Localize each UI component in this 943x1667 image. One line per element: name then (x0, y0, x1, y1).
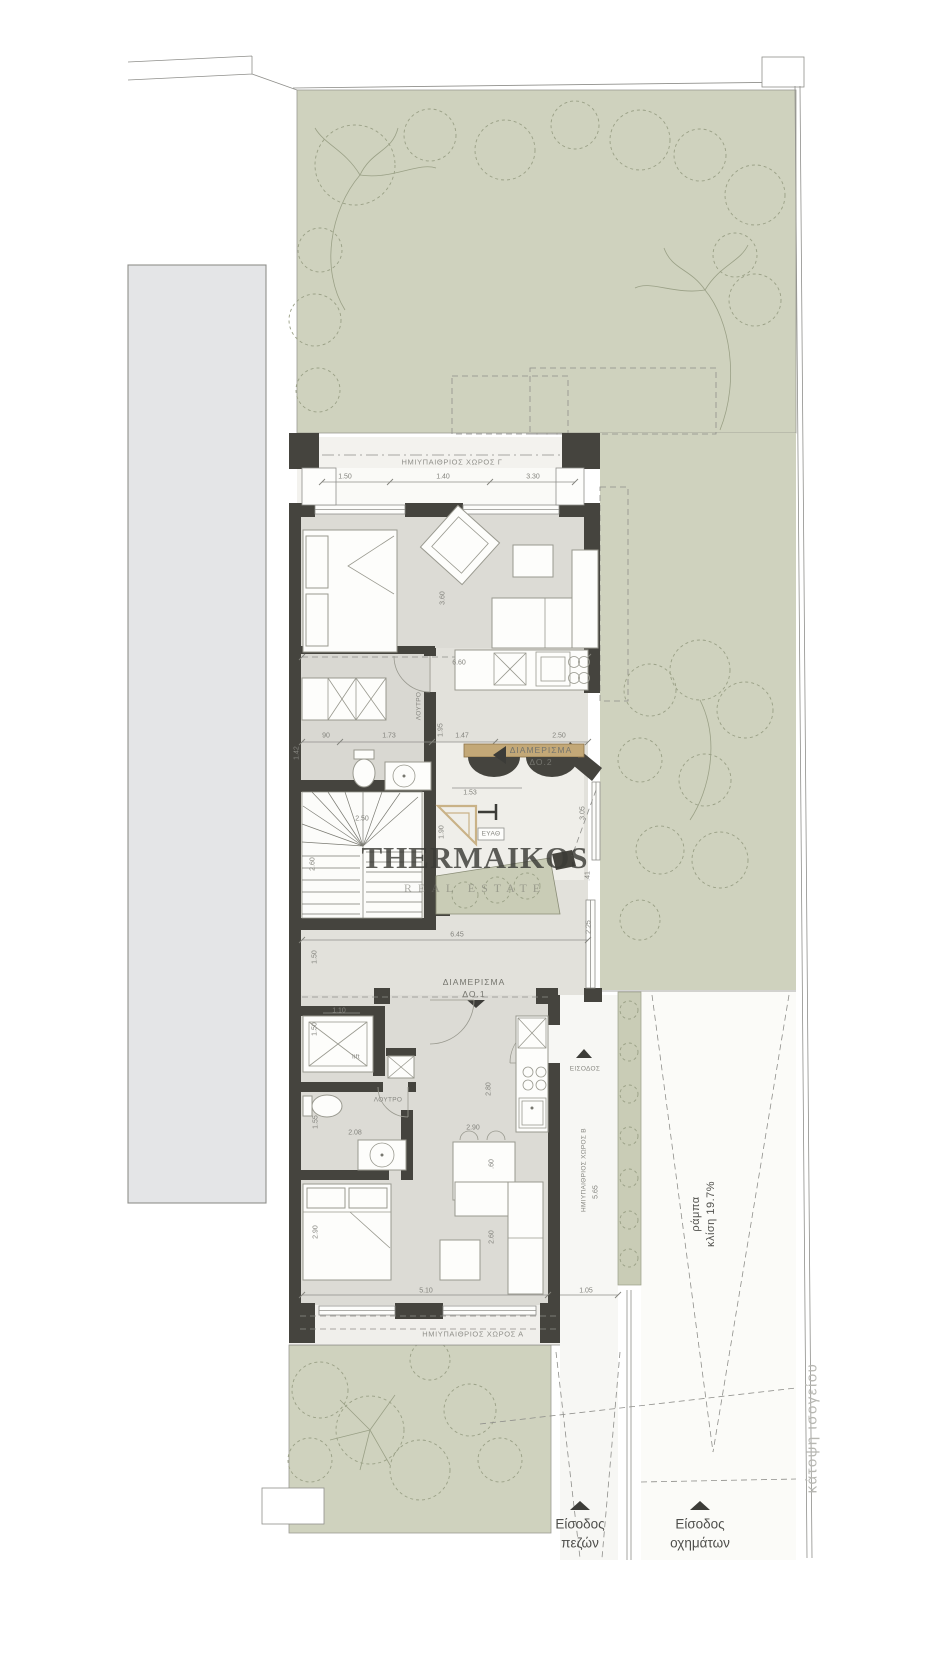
label-bath-upper: ΛΟΥΤΡΟ (416, 692, 423, 721)
sofa-upper-chaise (572, 550, 598, 648)
dimension-label: 1.50 (338, 474, 352, 481)
coffee-table (440, 1240, 480, 1280)
dimension-label: 5.65 (593, 1185, 600, 1199)
dimension-label: 2.60 (310, 857, 317, 871)
label-water-meter: ΕΥΑΘ (482, 831, 501, 838)
boundary-marker-top-right (762, 57, 804, 87)
dimension-label: 1.53 (463, 790, 477, 797)
dimension-label: 1.40 (436, 474, 450, 481)
dimension-label: 5.10 (419, 1288, 433, 1295)
wardrobe (302, 678, 386, 720)
label-entrance: ΕΙΣΟΔΟΣ (570, 1066, 600, 1073)
label-apartment-do2-line1: ΔΙΑΜΕΡΙΣΜΑ (510, 745, 573, 755)
toilet-tank-lower (303, 1096, 312, 1116)
dimension-label: 1.10 (332, 1008, 346, 1015)
label-apartment-do1-line1: ΔΙΑΜΕΡΙΣΜΑ (443, 977, 506, 987)
dimension-label: 6.45 (450, 932, 464, 939)
dimension-label: 2.90 (313, 1225, 320, 1239)
label-semi-open-a: ΗΜΙΥΠΑΙΘΡΙΟΣ ΧΩΡΟΣ Α (422, 1330, 523, 1339)
dimension-label: 3.05 (580, 806, 587, 820)
label-entry-pedestrian-line1: Είσοδος (555, 1517, 604, 1532)
label-lift: lift (352, 1054, 360, 1061)
dimension-label: 2.60 (489, 1230, 496, 1244)
dimension-label: 6.60 (452, 660, 466, 667)
dimension-label: 1.73 (382, 733, 396, 740)
dimension-label: 2.50 (355, 816, 369, 823)
label-semi-open-c: ΗΜΙΥΠΑΙΘΡΙΟΣ ΧΩΡΟΣ Γ (401, 458, 502, 467)
dimension-label: 3.30 (526, 474, 540, 481)
toilet-tank (354, 750, 374, 759)
label-entry-vehicles-line1: Είσοδος (675, 1517, 724, 1532)
pillow (349, 1188, 387, 1208)
upper-kitchen (455, 650, 590, 690)
dimension-label: 1.50 (312, 1022, 319, 1036)
dimension-label: 90 (322, 733, 330, 740)
pillow (306, 536, 328, 588)
entrance-door-gap (548, 1025, 560, 1063)
dimension-label: .60 (489, 1159, 496, 1169)
side-table (513, 545, 553, 577)
watermark-tagline: REAL ESTATE (380, 881, 570, 896)
dimension-label: 1.47 (455, 733, 469, 740)
floor-plan-drawing (0, 0, 943, 1667)
label-ramp-line1: ράμπα (690, 1196, 702, 1231)
dimension-label: 1.05 (579, 1288, 593, 1295)
label-ramp-line2: κλίση 19.7% (705, 1181, 717, 1247)
dimension-label: 1.95 (438, 723, 445, 737)
toilet-lower (312, 1095, 342, 1117)
dimension-label: 2.08 (348, 1130, 362, 1137)
label-apartment-do2-line2: ΔΟ.2 (529, 757, 552, 767)
pillow (306, 594, 328, 646)
dimension-label: 2.80 (486, 1082, 493, 1096)
sink-counter-upper (385, 762, 431, 790)
dimension-label: 2.50 (552, 733, 566, 740)
dimension-label: 1.42 (294, 746, 301, 760)
garden-bottom-left (289, 1345, 551, 1533)
driveway-ramp (641, 990, 796, 1560)
label-plan-caption: κάτοψη ισογείου (804, 1363, 821, 1494)
dimension-label: 2.90 (466, 1125, 480, 1132)
pillow (307, 1188, 345, 1208)
garden-right-strip (600, 433, 796, 990)
dimension-label: 3.60 (440, 591, 447, 605)
toilet-upper (353, 759, 375, 787)
label-entry-vehicles-line2: οχημάτων (670, 1536, 730, 1551)
kitchen-counter-upper (455, 650, 588, 690)
garden-top (297, 90, 796, 433)
watermark-title: THERMAIKOS (318, 840, 632, 876)
floor-plan-canvas: ΗΜΙΥΠΑΙΘΡΙΟΣ ΧΩΡΟΣ ΓΔΙΑΜΕΡΙΣΜΑΔΟ.2ΛΟΥΤΡΟ… (0, 0, 943, 1667)
dimension-label: 1.90 (439, 825, 446, 839)
boundary-marker-bottom-left (262, 1488, 324, 1524)
dimension-label: 1.50 (312, 950, 319, 964)
label-apartment-do1-line2: ΔΟ.1 (462, 989, 485, 999)
label-entry-pedestrian-line2: πεζών (561, 1536, 599, 1551)
label-semi-open-b: ΗΜΙΥΠΑΙΘΡΙΟΣ ΧΩΡΟΣ Β (581, 1128, 588, 1212)
dimension-label: 1.55 (313, 1115, 320, 1129)
label-bath-lower: ΛΟΥΤΡΟ (374, 1097, 403, 1104)
dimension-label: 2.25 (586, 920, 593, 934)
neighbor-building (128, 265, 266, 1203)
